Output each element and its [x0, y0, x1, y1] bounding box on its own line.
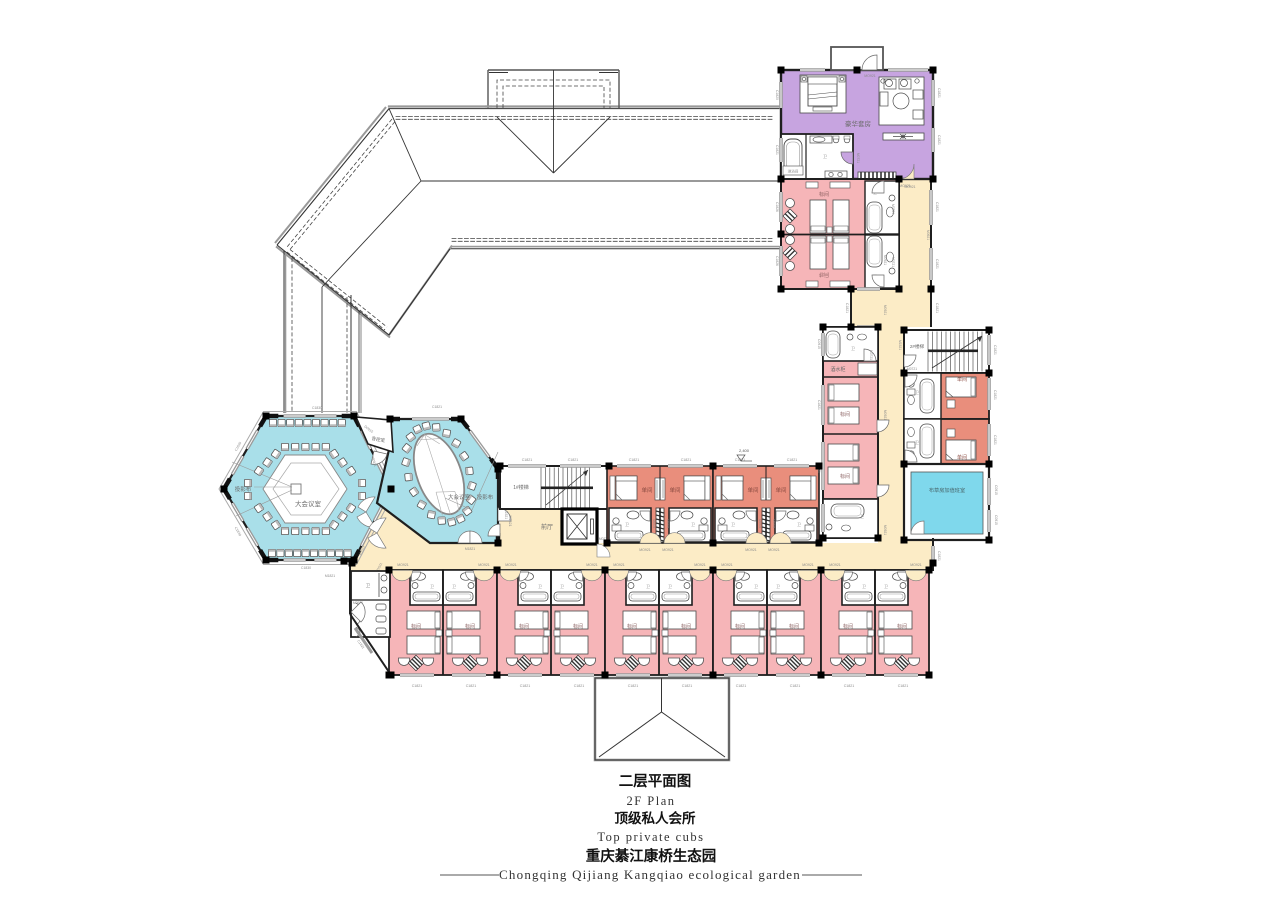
svg-text:M0921: M0921	[883, 305, 887, 315]
svg-text:C0915: C0915	[817, 339, 821, 349]
svg-text:C1826: C1826	[775, 256, 779, 266]
svg-text:M0921: M0921	[926, 230, 930, 240]
svg-text:M0921: M0921	[883, 525, 887, 535]
svg-text:大会议室: 大会议室	[295, 499, 322, 508]
svg-text:卫: 卫	[691, 523, 695, 527]
svg-text:C1821: C1821	[844, 684, 855, 688]
svg-text:卫: 卫	[731, 523, 735, 527]
svg-text:MO921: MO921	[639, 548, 651, 552]
svg-text:2,400: 2,400	[739, 448, 750, 453]
svg-text:卫: 卫	[646, 585, 650, 589]
svg-text:标间: 标间	[573, 623, 583, 630]
svg-text:C1830: C1830	[312, 406, 322, 410]
svg-text:C1821: C1821	[993, 435, 997, 445]
svg-text:卫: 卫	[560, 585, 564, 589]
svg-text:标间: 标间	[819, 271, 829, 278]
svg-text:C1821: C1821	[628, 684, 639, 688]
svg-text:C1821: C1821	[787, 458, 798, 462]
svg-text:淋浴间: 淋浴间	[788, 169, 799, 174]
svg-text:卫: 卫	[851, 347, 855, 351]
svg-text:M1521: M1521	[504, 509, 508, 519]
svg-text:C1821: C1821	[466, 684, 477, 688]
svg-text:C1821: C1821	[736, 684, 747, 688]
svg-text:MO921: MO921	[505, 563, 517, 567]
svg-text:单间: 单间	[957, 376, 967, 383]
svg-text:豪华套房: 豪华套房	[845, 119, 871, 128]
svg-text:M1821: M1821	[465, 547, 475, 551]
svg-text:标间: 标间	[465, 623, 475, 630]
svg-text:MO921: MO921	[864, 74, 876, 78]
svg-text:标间: 标间	[681, 623, 691, 630]
svg-text:标间: 标间	[840, 411, 850, 418]
svg-text:C1830: C1830	[301, 566, 311, 570]
svg-text:卫: 卫	[452, 585, 456, 589]
svg-text:M0721: M0721	[772, 519, 776, 529]
svg-text:卫: 卫	[797, 523, 801, 527]
svg-text:MO921: MO921	[613, 563, 625, 567]
svg-text:卫: 卫	[668, 585, 672, 589]
svg-text:C1821: C1821	[432, 405, 442, 409]
svg-text:卫: 卫	[915, 441, 919, 445]
svg-text:布草房加值班室: 布草房加值班室	[929, 486, 965, 494]
svg-text:标间: 标间	[519, 623, 529, 630]
svg-text:M0721: M0721	[891, 204, 895, 214]
svg-text:MO921: MO921	[802, 563, 814, 567]
svg-text:卫: 卫	[430, 585, 434, 589]
svg-text:C1821: C1821	[681, 458, 692, 462]
svg-text:C1821: C1821	[574, 684, 585, 688]
svg-text:卫: 卫	[860, 515, 864, 519]
svg-text:卫: 卫	[625, 523, 629, 527]
svg-text:MO921: MO921	[478, 563, 490, 567]
svg-text:单间: 单间	[747, 486, 758, 494]
svg-text:MO921: MO921	[397, 563, 409, 567]
svg-text:C1821: C1821	[937, 135, 941, 145]
svg-text:1#楼梯: 1#楼梯	[513, 484, 529, 491]
svg-text:卫: 卫	[776, 585, 780, 589]
svg-text:M0921: M0921	[883, 255, 887, 265]
svg-text:MO921: MO921	[829, 563, 841, 567]
svg-text:C1820: C1820	[775, 90, 779, 100]
svg-text:卫: 卫	[915, 391, 919, 395]
svg-text:M1821: M1821	[325, 574, 335, 578]
svg-text:M0921: M0921	[883, 410, 887, 420]
svg-text:标间: 标间	[627, 623, 637, 630]
svg-text:C1821: C1821	[935, 259, 939, 269]
svg-text:单间: 单间	[641, 486, 652, 494]
svg-text:C1821: C1821	[937, 551, 941, 561]
svg-text:顶级私人会所: 顶级私人会所	[615, 810, 696, 826]
svg-text:MO921: MO921	[662, 548, 674, 552]
svg-text:卫: 卫	[862, 585, 866, 589]
svg-text:M1521: M1521	[898, 340, 902, 350]
svg-text:M1521: M1521	[508, 516, 512, 527]
svg-text:单间: 单间	[957, 454, 967, 461]
svg-text:MO921: MO921	[910, 563, 922, 567]
svg-text:Chongqing Qijiang Kangqiao eco: Chongqing Qijiang Kangqiao ecological ga…	[499, 867, 801, 882]
svg-text:C1821: C1821	[845, 303, 849, 313]
svg-text:MO921: MO921	[694, 563, 706, 567]
svg-text:C1821: C1821	[898, 684, 909, 688]
svg-text:M0721: M0721	[856, 153, 860, 163]
svg-text:大会议室: 大会议室	[448, 493, 471, 501]
svg-text:标间: 标间	[789, 623, 799, 630]
svg-text:MO921: MO921	[904, 185, 915, 189]
svg-text:C1821: C1821	[629, 458, 640, 462]
svg-text:卫: 卫	[754, 585, 758, 589]
svg-text:M0721: M0721	[869, 350, 873, 360]
svg-text:C0915: C0915	[994, 485, 998, 495]
svg-text:卫: 卫	[366, 583, 371, 588]
svg-text:M0721: M0721	[891, 257, 895, 267]
svg-text:二层平面图: 二层平面图	[619, 773, 692, 790]
svg-text:标间: 标间	[819, 191, 829, 198]
svg-text:MO921: MO921	[745, 548, 757, 552]
svg-text:M0721: M0721	[758, 519, 762, 529]
svg-text:2F Plan: 2F Plan	[626, 794, 675, 808]
svg-text:C1821: C1821	[520, 684, 531, 688]
svg-text:C1821: C1821	[522, 458, 533, 462]
svg-text:单间: 单间	[775, 486, 786, 494]
svg-text:M0721: M0721	[907, 367, 917, 371]
svg-text:C1821: C1821	[817, 400, 821, 410]
svg-text:卫: 卫	[884, 585, 888, 589]
svg-text:前厅: 前厅	[541, 523, 553, 531]
svg-text:C1821: C1821	[935, 202, 939, 212]
svg-text:C1826: C1826	[775, 202, 779, 212]
svg-text:M0721: M0721	[666, 519, 670, 529]
svg-text:单间: 单间	[669, 486, 680, 494]
svg-text:C1821: C1821	[935, 303, 939, 313]
svg-text:MO921: MO921	[721, 563, 733, 567]
svg-text:标间: 标间	[897, 623, 907, 630]
svg-text:C1821: C1821	[412, 684, 423, 688]
svg-text:C1821: C1821	[775, 145, 779, 155]
svg-text:C1821: C1821	[993, 345, 997, 355]
svg-text:卫: 卫	[538, 585, 542, 589]
svg-text:酒水柜: 酒水柜	[830, 366, 845, 373]
svg-text:MO921: MO921	[586, 563, 598, 567]
svg-text:Top private cubs: Top private cubs	[597, 830, 704, 844]
svg-text:2#楼梯: 2#楼梯	[910, 343, 925, 350]
svg-text:C1821: C1821	[568, 458, 579, 462]
svg-text:重庆綦江康桥生态园: 重庆綦江康桥生态园	[586, 847, 717, 865]
svg-text:C1821: C1821	[993, 390, 997, 400]
svg-text:MO921: MO921	[768, 548, 780, 552]
svg-text:标间: 标间	[735, 623, 745, 630]
svg-text:卫: 卫	[823, 154, 827, 159]
svg-text:标间: 标间	[843, 623, 853, 630]
svg-text:C1821: C1821	[937, 88, 941, 98]
svg-text:标间: 标间	[411, 623, 421, 630]
svg-text:C1821: C1821	[682, 684, 693, 688]
svg-text:C0915: C0915	[994, 515, 998, 525]
svg-text:C1821: C1821	[790, 684, 801, 688]
svg-text:标间: 标间	[840, 473, 850, 480]
svg-text:M0721: M0721	[652, 519, 656, 529]
